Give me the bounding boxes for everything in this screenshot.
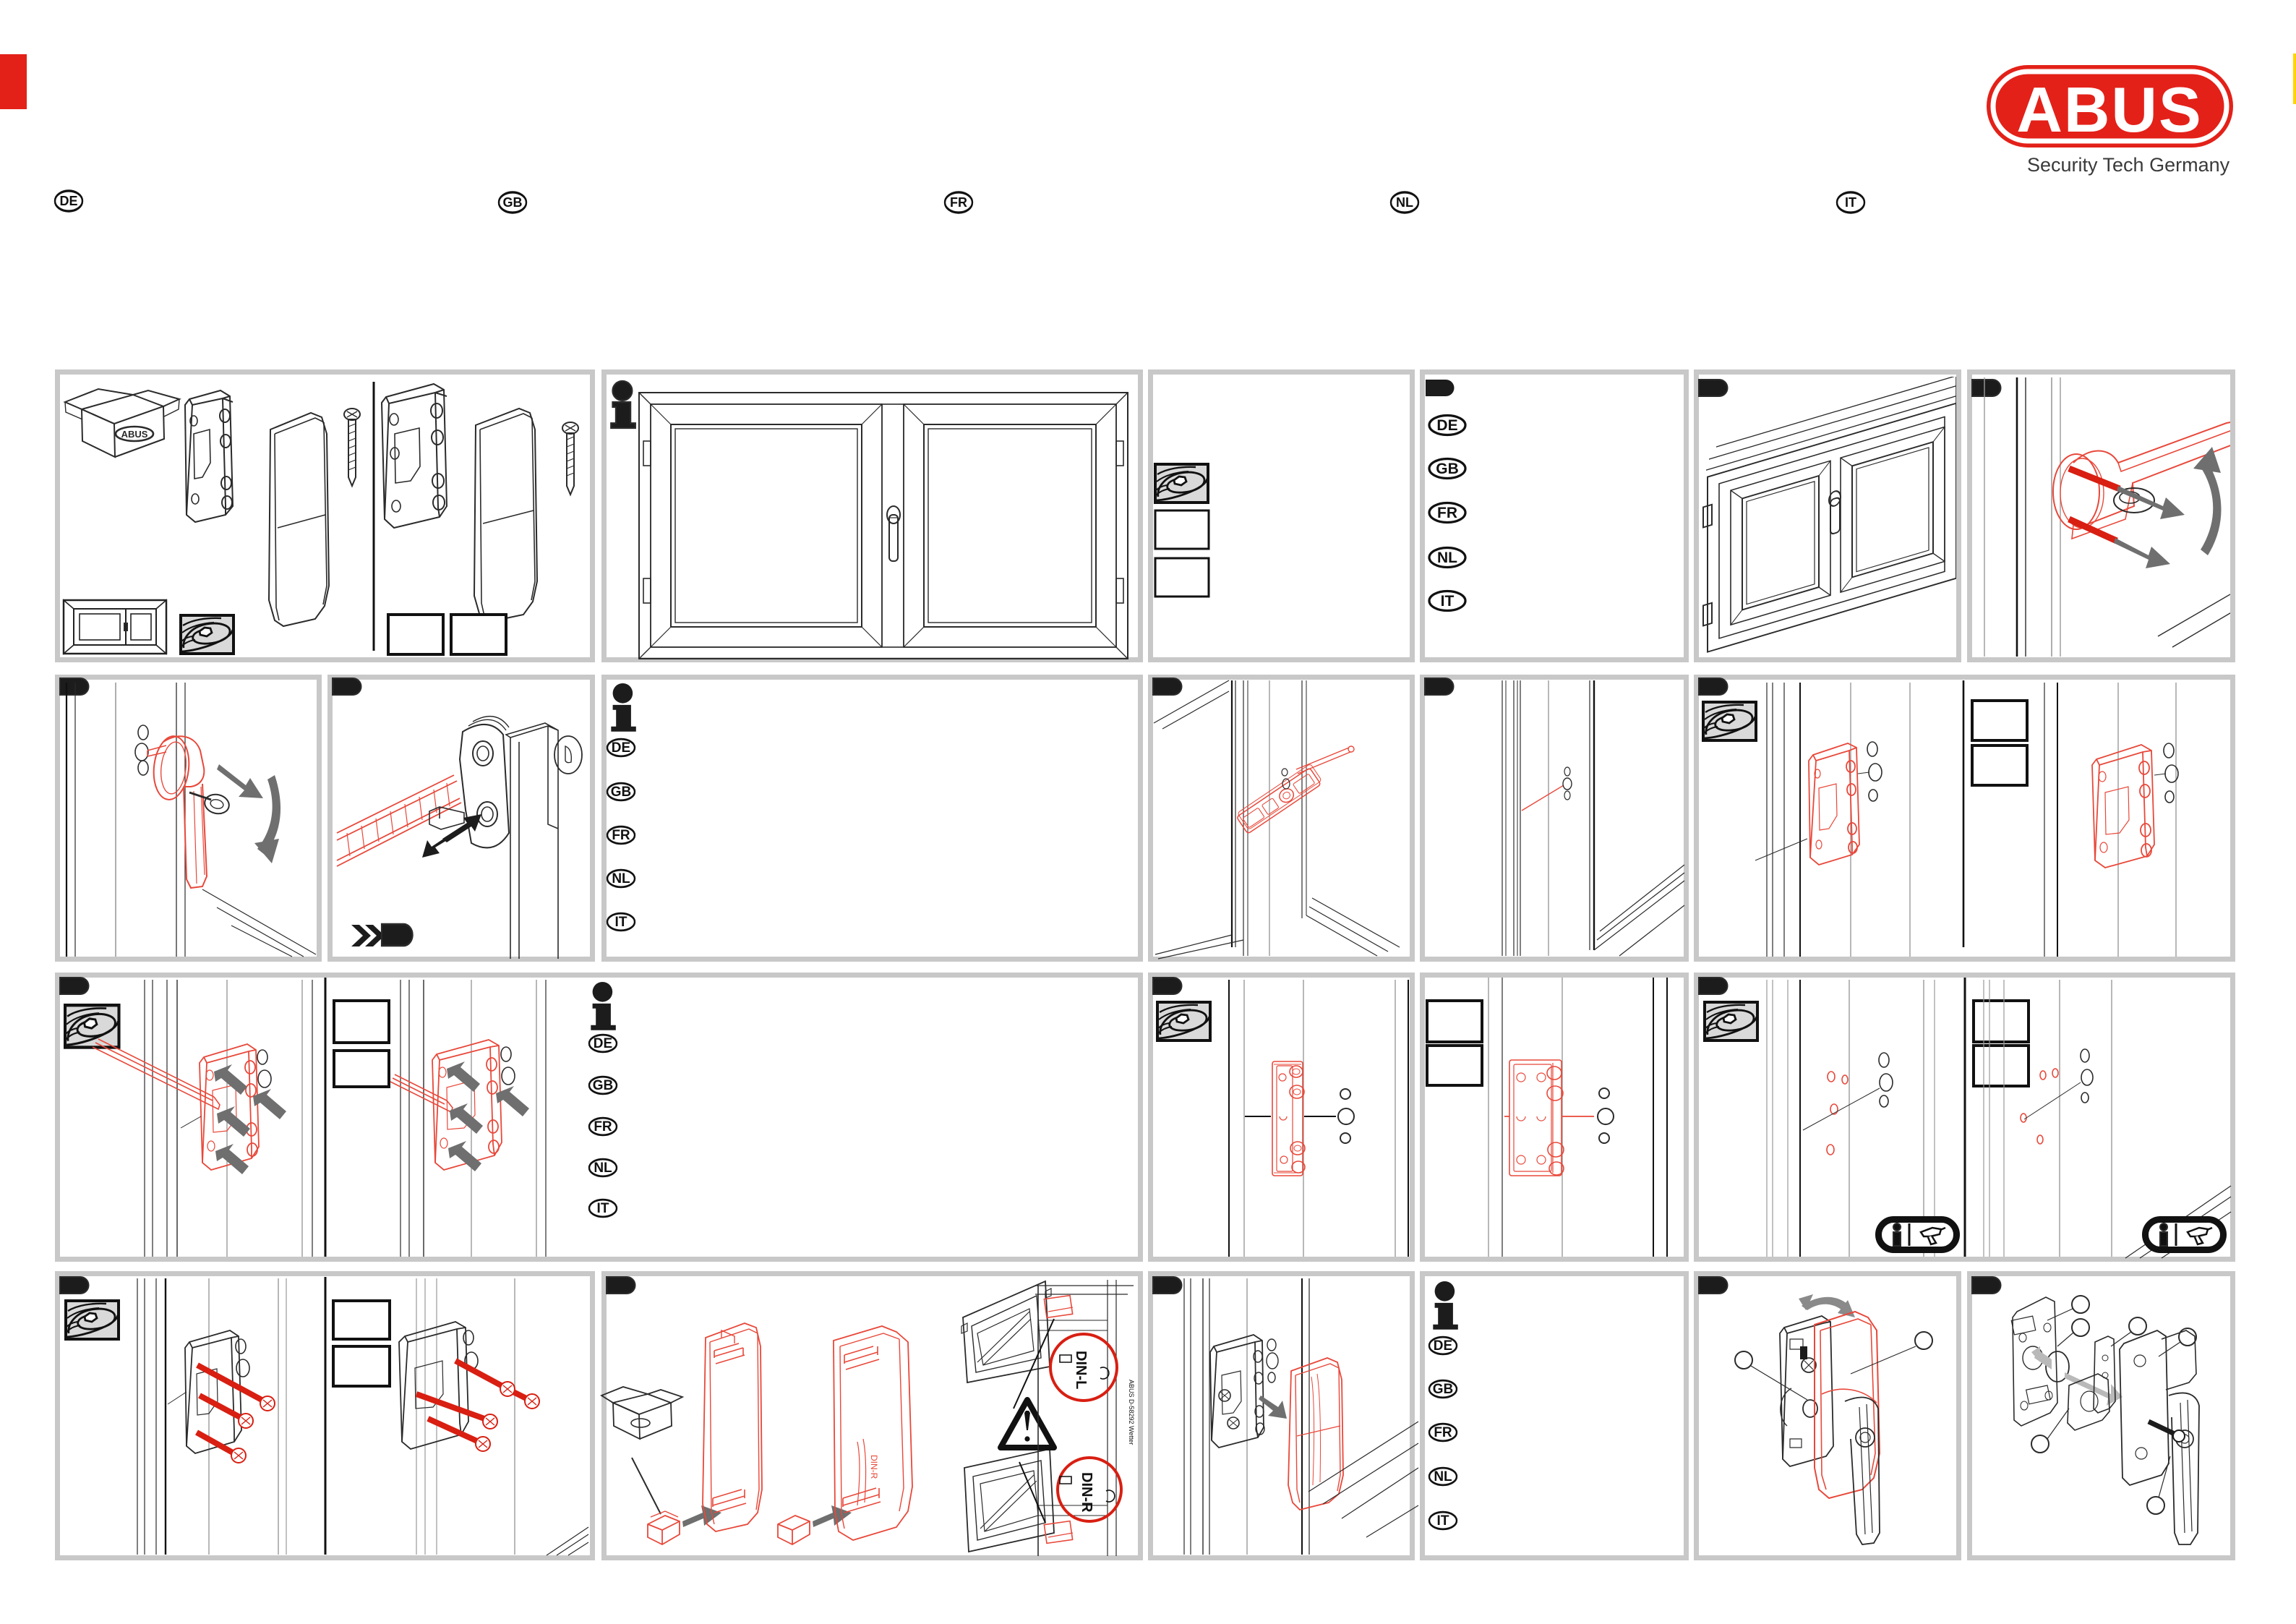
svg-text:IT: IT [597, 1201, 609, 1216]
svg-text:NL: NL [594, 1161, 612, 1176]
svg-text:NL: NL [1396, 195, 1413, 210]
svg-text:FR: FR [594, 1119, 612, 1134]
svg-text:IT: IT [615, 915, 627, 930]
svg-text:Security Tech Germany: Security Tech Germany [2027, 154, 2230, 176]
svg-text:DE: DE [59, 194, 77, 208]
svg-text:ABUS D-58292 Wetter: ABUS D-58292 Wetter [1128, 1380, 1135, 1445]
svg-text:FR: FR [1437, 505, 1457, 521]
svg-text:IT: IT [1441, 593, 1455, 610]
svg-text:FR: FR [1434, 1425, 1452, 1440]
svg-text:DIN-R: DIN-R [869, 1455, 879, 1479]
svg-text:GB: GB [1436, 461, 1459, 477]
svg-text:DE: DE [1434, 1338, 1452, 1354]
svg-text:GB: GB [503, 195, 523, 210]
svg-text:ABUS: ABUS [2016, 74, 2202, 145]
svg-text:NL: NL [1434, 1469, 1452, 1484]
svg-text:ABUS: ABUS [121, 429, 148, 440]
svg-text:IT: IT [1845, 195, 1856, 210]
svg-text:GB: GB [611, 785, 632, 800]
svg-text:DIN-L: DIN-L [1073, 1351, 1089, 1389]
svg-text:DE: DE [594, 1036, 612, 1051]
svg-text:DIN-R: DIN-R [1079, 1472, 1095, 1513]
svg-text:GB: GB [1433, 1382, 1454, 1397]
svg-text:GB: GB [593, 1078, 614, 1093]
svg-text:IT: IT [1437, 1513, 1449, 1529]
svg-text:NL: NL [1437, 550, 1457, 566]
svg-text:FR: FR [612, 828, 630, 843]
svg-text:DE: DE [612, 740, 630, 756]
svg-text:DE: DE [1436, 417, 1457, 434]
svg-text:FR: FR [950, 195, 967, 210]
svg-text:NL: NL [612, 871, 630, 886]
